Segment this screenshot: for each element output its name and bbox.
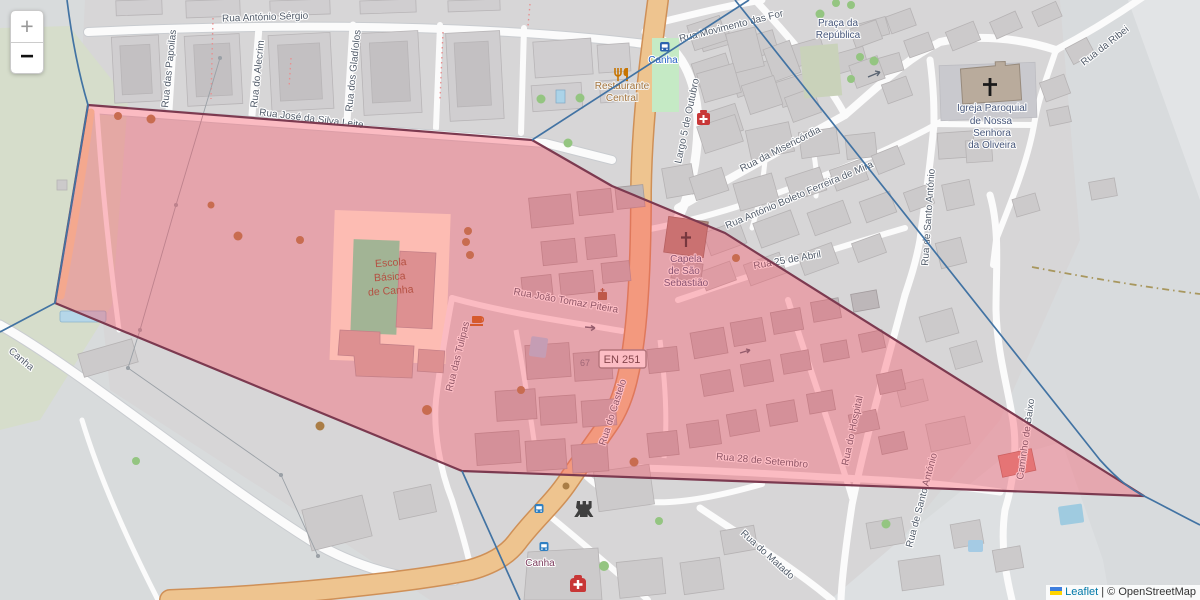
- svg-text:de Nossa: de Nossa: [970, 116, 1013, 127]
- svg-text:Senhora: Senhora: [973, 128, 1011, 139]
- svg-text:Canha: Canha: [525, 558, 555, 569]
- svg-text:da Oliveira: da Oliveira: [968, 140, 1016, 151]
- svg-text:Canha: Canha: [648, 55, 678, 66]
- svg-text:Central: Central: [606, 93, 638, 104]
- svg-text:República: República: [816, 30, 861, 41]
- svg-text:Igreja Paroquial: Igreja Paroquial: [957, 103, 1027, 114]
- svg-text:Praça da: Praça da: [818, 18, 858, 29]
